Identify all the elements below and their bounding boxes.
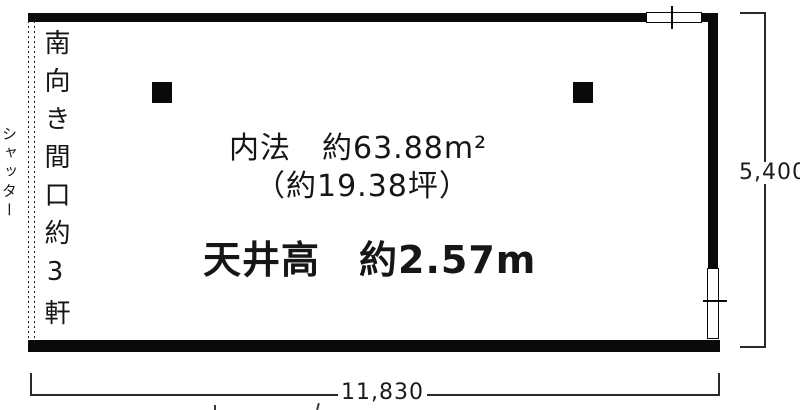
window-tick-top	[671, 6, 673, 29]
shutter-track-line-inner	[34, 21, 35, 345]
dim-tick-right-bottom	[740, 346, 766, 348]
area-tsubo-text: （約19.38坪）	[255, 161, 470, 205]
pillar-square-icon	[573, 82, 593, 103]
window-symbol-top	[646, 12, 702, 23]
pillar-square-icon	[152, 82, 172, 103]
scan-artifact	[214, 405, 216, 410]
dim-tick-bottom-left	[30, 373, 32, 395]
window-tick-right	[703, 300, 727, 302]
dim-label-height: 5,400	[736, 162, 800, 184]
dim-tick-bottom-right	[718, 373, 720, 395]
shutter-label: シャッター	[1, 126, 17, 221]
dim-tick-right-top	[740, 12, 766, 14]
scan-artifact	[316, 403, 320, 410]
floor-plan: シャッター 南向き間口約3軒 内法 約63.88m² （約19.38坪） 天井高…	[0, 0, 800, 410]
frontage-label: 南向き間口約3軒	[41, 29, 68, 337]
wall-bottom	[28, 340, 720, 352]
wall-right-upper-segment	[708, 13, 718, 268]
dim-label-width: 11,830	[338, 382, 427, 404]
shutter-track-line-outer	[28, 21, 29, 345]
ceiling-height-text: 天井高 約2.57m	[203, 229, 536, 284]
window-symbol-right	[707, 268, 719, 339]
wall-top-left-segment	[28, 13, 647, 22]
